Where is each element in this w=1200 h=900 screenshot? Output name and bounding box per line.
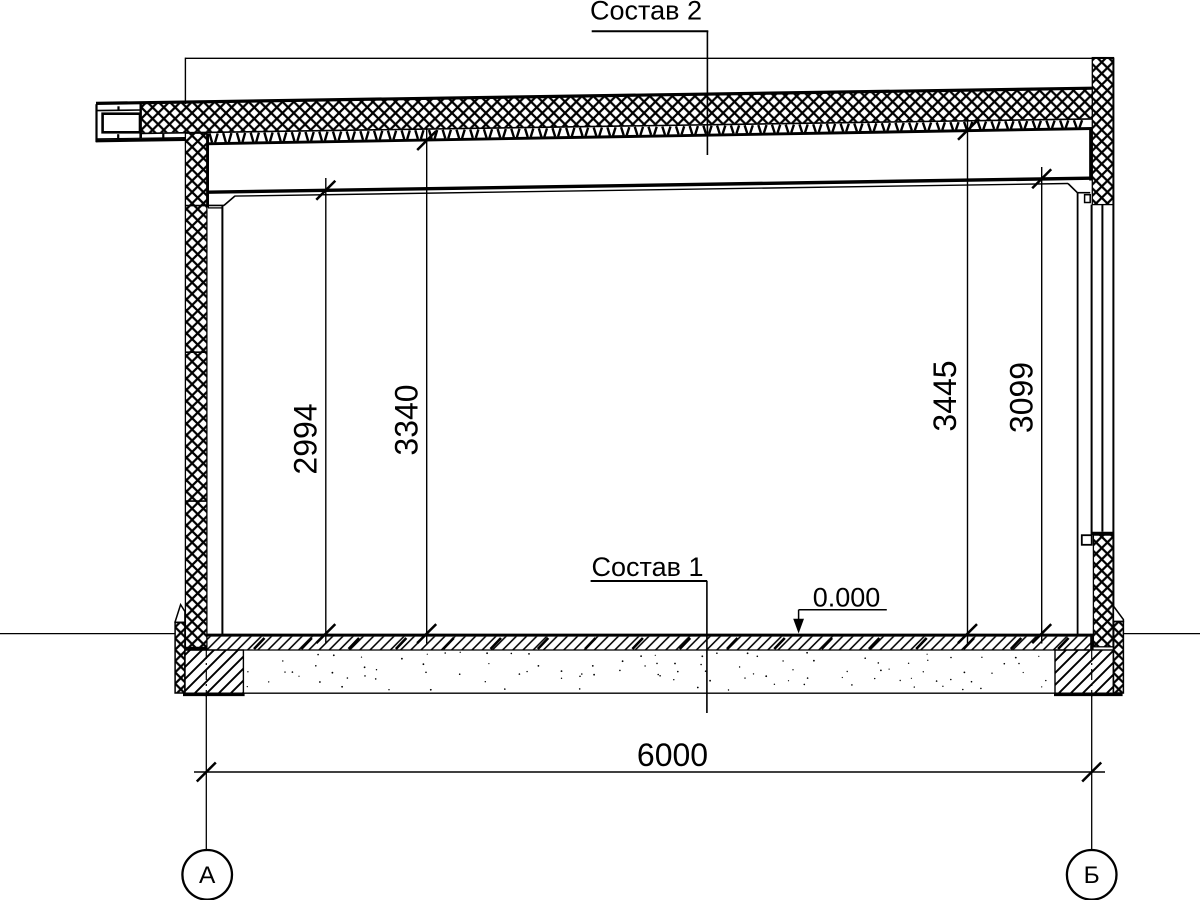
- svg-text:2994: 2994: [287, 403, 323, 474]
- svg-text:0.000: 0.000: [813, 583, 881, 613]
- svg-text:Б: Б: [1084, 862, 1100, 889]
- svg-text:3340: 3340: [388, 384, 424, 455]
- svg-text:3099: 3099: [1003, 362, 1039, 433]
- svg-text:6000: 6000: [637, 737, 708, 773]
- svg-text:А: А: [199, 862, 216, 889]
- svg-text:3445: 3445: [927, 360, 963, 431]
- svg-text:Состав 1: Состав 1: [592, 552, 704, 582]
- svg-text:Состав 2: Состав 2: [590, 0, 702, 26]
